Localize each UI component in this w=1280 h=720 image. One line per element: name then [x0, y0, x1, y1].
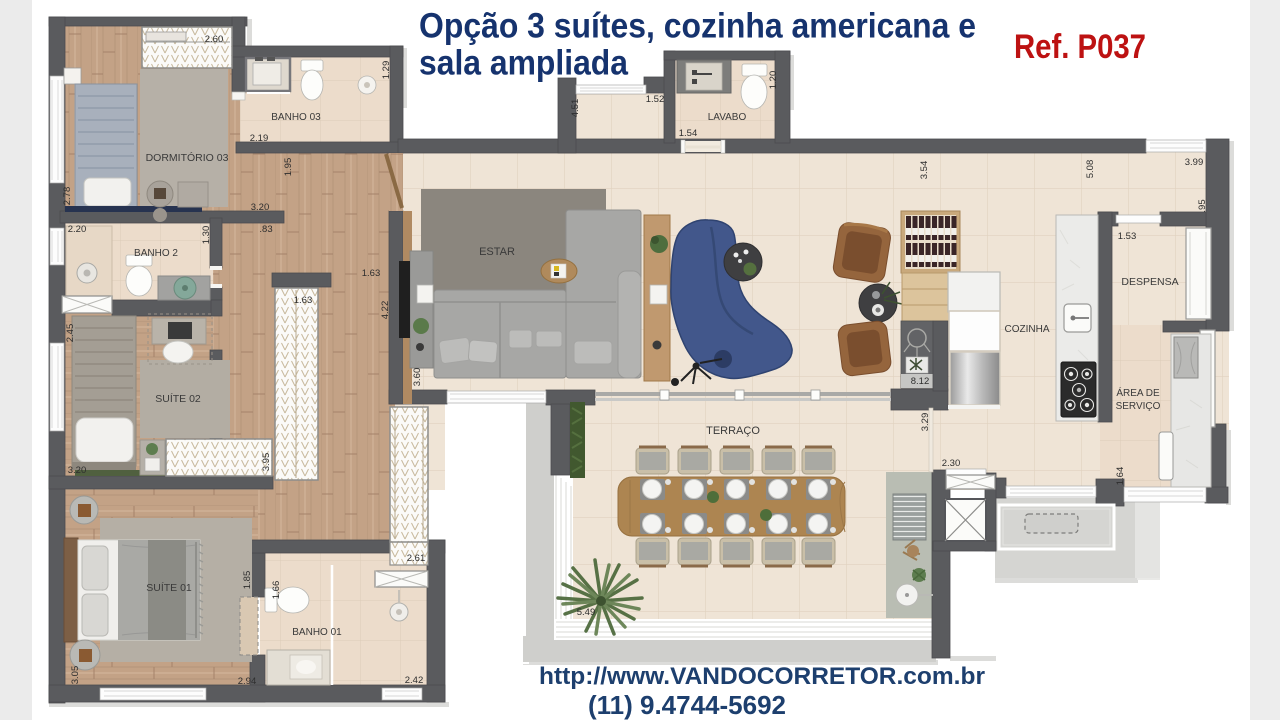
svg-text:1.30: 1.30 — [201, 226, 212, 245]
svg-text:BANHO 01: BANHO 01 — [292, 627, 342, 638]
svg-text:2.94: 2.94 — [238, 676, 257, 687]
svg-text:1.95: 1.95 — [283, 158, 294, 177]
svg-text:Opção 3 suítes, cozinha americ: Opção 3 suítes, cozinha americana e — [419, 7, 976, 46]
svg-text:4.22: 4.22 — [380, 301, 391, 320]
svg-text:2.19: 2.19 — [250, 133, 269, 144]
svg-text:5.49: 5.49 — [577, 607, 596, 618]
svg-text:2.20: 2.20 — [68, 224, 87, 235]
svg-text:3.20: 3.20 — [251, 202, 270, 213]
svg-text:1.54: 1.54 — [679, 128, 698, 139]
svg-text:1.29: 1.29 — [381, 61, 392, 80]
svg-text:sala ampliada: sala ampliada — [419, 44, 628, 83]
svg-text:1.64: 1.64 — [1115, 467, 1126, 486]
svg-text:2.45: 2.45 — [65, 324, 76, 343]
svg-text:2.61: 2.61 — [407, 553, 426, 564]
svg-text:1.63: 1.63 — [362, 268, 381, 279]
svg-text:Ref. P037: Ref. P037 — [1014, 28, 1146, 66]
svg-text:3.05: 3.05 — [70, 666, 81, 685]
svg-text:3.60: 3.60 — [412, 368, 423, 387]
svg-text:DORMITÓRIO 03: DORMITÓRIO 03 — [146, 151, 229, 164]
svg-text:3.20: 3.20 — [68, 465, 87, 476]
svg-text:http://www.VANDOCORRETOR.com.b: http://www.VANDOCORRETOR.com.br — [539, 663, 985, 690]
svg-text:SUÍTE 01: SUÍTE 01 — [146, 581, 192, 594]
svg-text:1.63: 1.63 — [294, 295, 313, 306]
svg-text:3.29: 3.29 — [920, 413, 931, 432]
svg-text:2.78: 2.78 — [62, 187, 73, 206]
svg-text:TERRAÇO: TERRAÇO — [706, 425, 760, 437]
svg-text:(11) 9.4744-5692: (11) 9.4744-5692 — [588, 690, 786, 720]
svg-text:1.53: 1.53 — [1118, 231, 1137, 242]
svg-text:.83: .83 — [259, 224, 272, 235]
svg-text:4.51: 4.51 — [570, 99, 581, 118]
svg-text:2.42: 2.42 — [405, 675, 424, 686]
svg-text:8.12: 8.12 — [911, 376, 930, 387]
svg-text:DESPENSA: DESPENSA — [1121, 276, 1178, 288]
svg-text:LAVABO: LAVABO — [708, 112, 747, 123]
svg-text:3.54: 3.54 — [919, 161, 930, 180]
svg-text:SERVIÇO: SERVIÇO — [1116, 401, 1161, 412]
svg-text:2.30: 2.30 — [942, 458, 961, 469]
svg-text:1.85: 1.85 — [242, 571, 253, 590]
svg-text:SUÍTE 02: SUÍTE 02 — [155, 392, 201, 405]
svg-text:1.66: 1.66 — [271, 581, 282, 600]
svg-text:2.60: 2.60 — [205, 34, 224, 45]
svg-text:3.99: 3.99 — [1185, 157, 1204, 168]
svg-text:ÁREA DE: ÁREA DE — [1116, 386, 1160, 399]
svg-text:5.08: 5.08 — [1085, 160, 1096, 179]
svg-text:.95: .95 — [1197, 199, 1208, 212]
svg-text:1.52: 1.52 — [646, 94, 665, 105]
svg-text:ESTAR: ESTAR — [479, 246, 515, 258]
svg-text:BANHO 2: BANHO 2 — [134, 248, 178, 259]
svg-text:BANHO 03: BANHO 03 — [271, 112, 321, 123]
svg-text:3.95: 3.95 — [261, 453, 272, 472]
svg-text:COZINHA: COZINHA — [1005, 324, 1050, 335]
svg-text:1.20: 1.20 — [768, 71, 779, 90]
